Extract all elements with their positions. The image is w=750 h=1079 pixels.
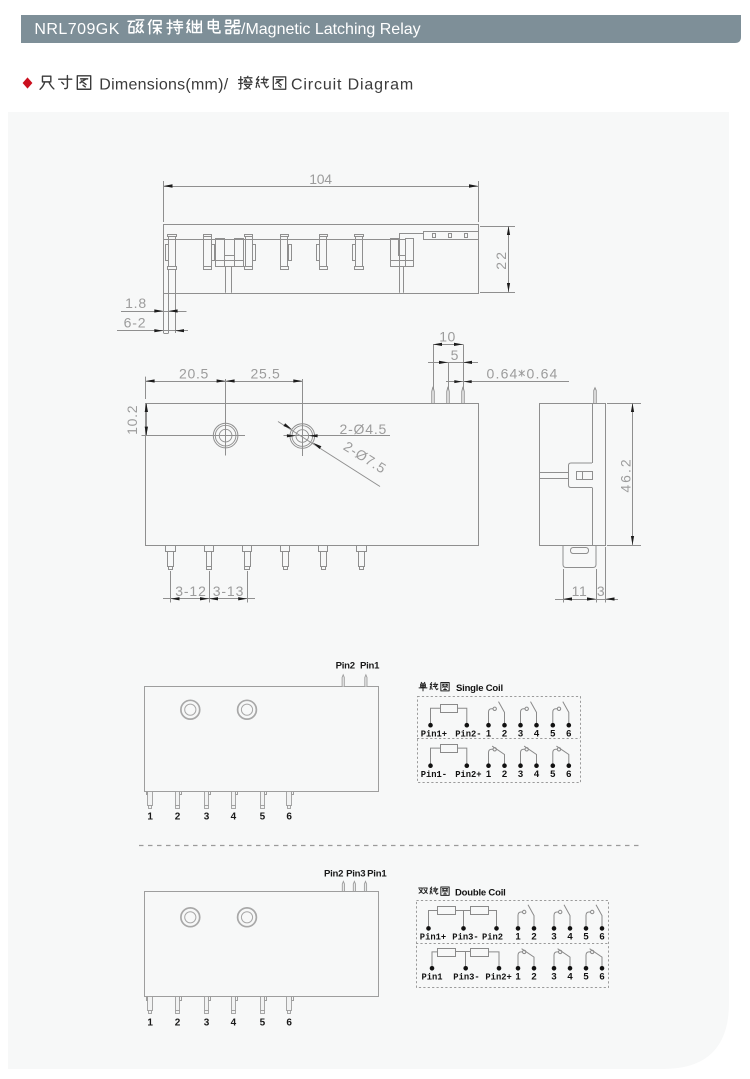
svg-text:5: 5 [550, 728, 556, 739]
svg-text:Dimensions(mm)/: Dimensions(mm)/ [99, 76, 228, 93]
svg-text:5: 5 [260, 812, 266, 823]
svg-text:46.2: 46.2 [618, 457, 634, 492]
svg-text:/Magnetic Latching Relay: /Magnetic Latching Relay [241, 21, 421, 38]
svg-text:3-12: 3-12 [175, 583, 207, 599]
svg-text:Pin2: Pin2 [324, 869, 343, 880]
svg-text:2: 2 [531, 932, 536, 943]
svg-text:Double Coil: Double Coil [455, 888, 506, 899]
svg-text:104: 104 [309, 171, 332, 187]
svg-text:2: 2 [502, 769, 507, 780]
svg-text:2: 2 [175, 812, 181, 823]
svg-text:Pin3: Pin3 [346, 869, 365, 880]
svg-text:0.64: 0.64 [487, 366, 519, 382]
svg-text:6: 6 [599, 971, 604, 982]
svg-text:2: 2 [175, 1017, 181, 1028]
svg-text:Pin1+: Pin1+ [421, 729, 447, 739]
svg-text:6: 6 [286, 1017, 292, 1028]
svg-text:4: 4 [231, 1017, 237, 1028]
svg-text:5: 5 [583, 932, 589, 943]
svg-text:1: 1 [515, 971, 521, 982]
svg-text:NRL709GK: NRL709GK [34, 21, 119, 38]
svg-text:6: 6 [566, 728, 571, 739]
svg-text:Pin3-: Pin3- [453, 972, 479, 982]
svg-text:4: 4 [534, 769, 540, 780]
svg-text:3: 3 [551, 971, 556, 982]
svg-text:1: 1 [515, 932, 521, 943]
svg-text:Single Coil: Single Coil [456, 683, 503, 694]
svg-text:3: 3 [551, 932, 556, 943]
svg-text:10.2: 10.2 [124, 405, 140, 435]
svg-text:5: 5 [451, 347, 459, 363]
svg-text:2: 2 [502, 728, 507, 739]
svg-text:20.5: 20.5 [179, 365, 209, 381]
svg-text:1.8: 1.8 [125, 295, 147, 311]
svg-text:6: 6 [566, 769, 571, 780]
svg-text:Pin3-: Pin3- [452, 933, 478, 943]
svg-text:5: 5 [583, 971, 589, 982]
svg-text:3-13: 3-13 [213, 583, 245, 599]
svg-text:4: 4 [534, 728, 540, 739]
svg-text:6: 6 [286, 812, 292, 823]
svg-text:Pin1+: Pin1+ [420, 933, 446, 943]
svg-text:Pin2+: Pin2+ [455, 770, 481, 780]
svg-text:2-Ø4.5: 2-Ø4.5 [340, 421, 388, 437]
svg-text:4: 4 [567, 932, 573, 943]
svg-text:11: 11 [572, 583, 588, 599]
svg-text:10: 10 [439, 329, 456, 345]
svg-text:6-2: 6-2 [124, 315, 147, 331]
svg-text:4: 4 [567, 971, 573, 982]
svg-text:Pin2: Pin2 [336, 660, 355, 671]
svg-text:3: 3 [204, 812, 210, 823]
svg-text:4: 4 [231, 812, 237, 823]
svg-text:1: 1 [147, 812, 153, 823]
svg-text:0.64: 0.64 [527, 366, 559, 382]
svg-text:Pin2+: Pin2+ [485, 972, 511, 982]
svg-text:1: 1 [486, 728, 492, 739]
svg-text:3: 3 [518, 728, 523, 739]
svg-text:Pin1: Pin1 [367, 869, 387, 880]
svg-text:5: 5 [550, 769, 556, 780]
svg-text:Circuit Diagram: Circuit Diagram [291, 76, 414, 93]
svg-text:1: 1 [147, 1017, 153, 1028]
svg-text:25.5: 25.5 [250, 365, 280, 381]
svg-text:Pin2: Pin2 [482, 933, 503, 943]
svg-text:3: 3 [597, 583, 605, 599]
svg-text:Pin2-: Pin2- [455, 729, 481, 739]
svg-text:5: 5 [260, 1017, 266, 1028]
svg-text:3: 3 [518, 769, 523, 780]
svg-text:Pin1: Pin1 [421, 972, 442, 982]
svg-text:1: 1 [486, 769, 492, 780]
svg-text:Pin1: Pin1 [360, 660, 380, 671]
svg-text:6: 6 [599, 932, 604, 943]
svg-text:3: 3 [204, 1017, 210, 1028]
svg-text:Pin1-: Pin1- [421, 770, 447, 780]
svg-text:2: 2 [531, 971, 536, 982]
svg-text:22: 22 [493, 250, 509, 270]
